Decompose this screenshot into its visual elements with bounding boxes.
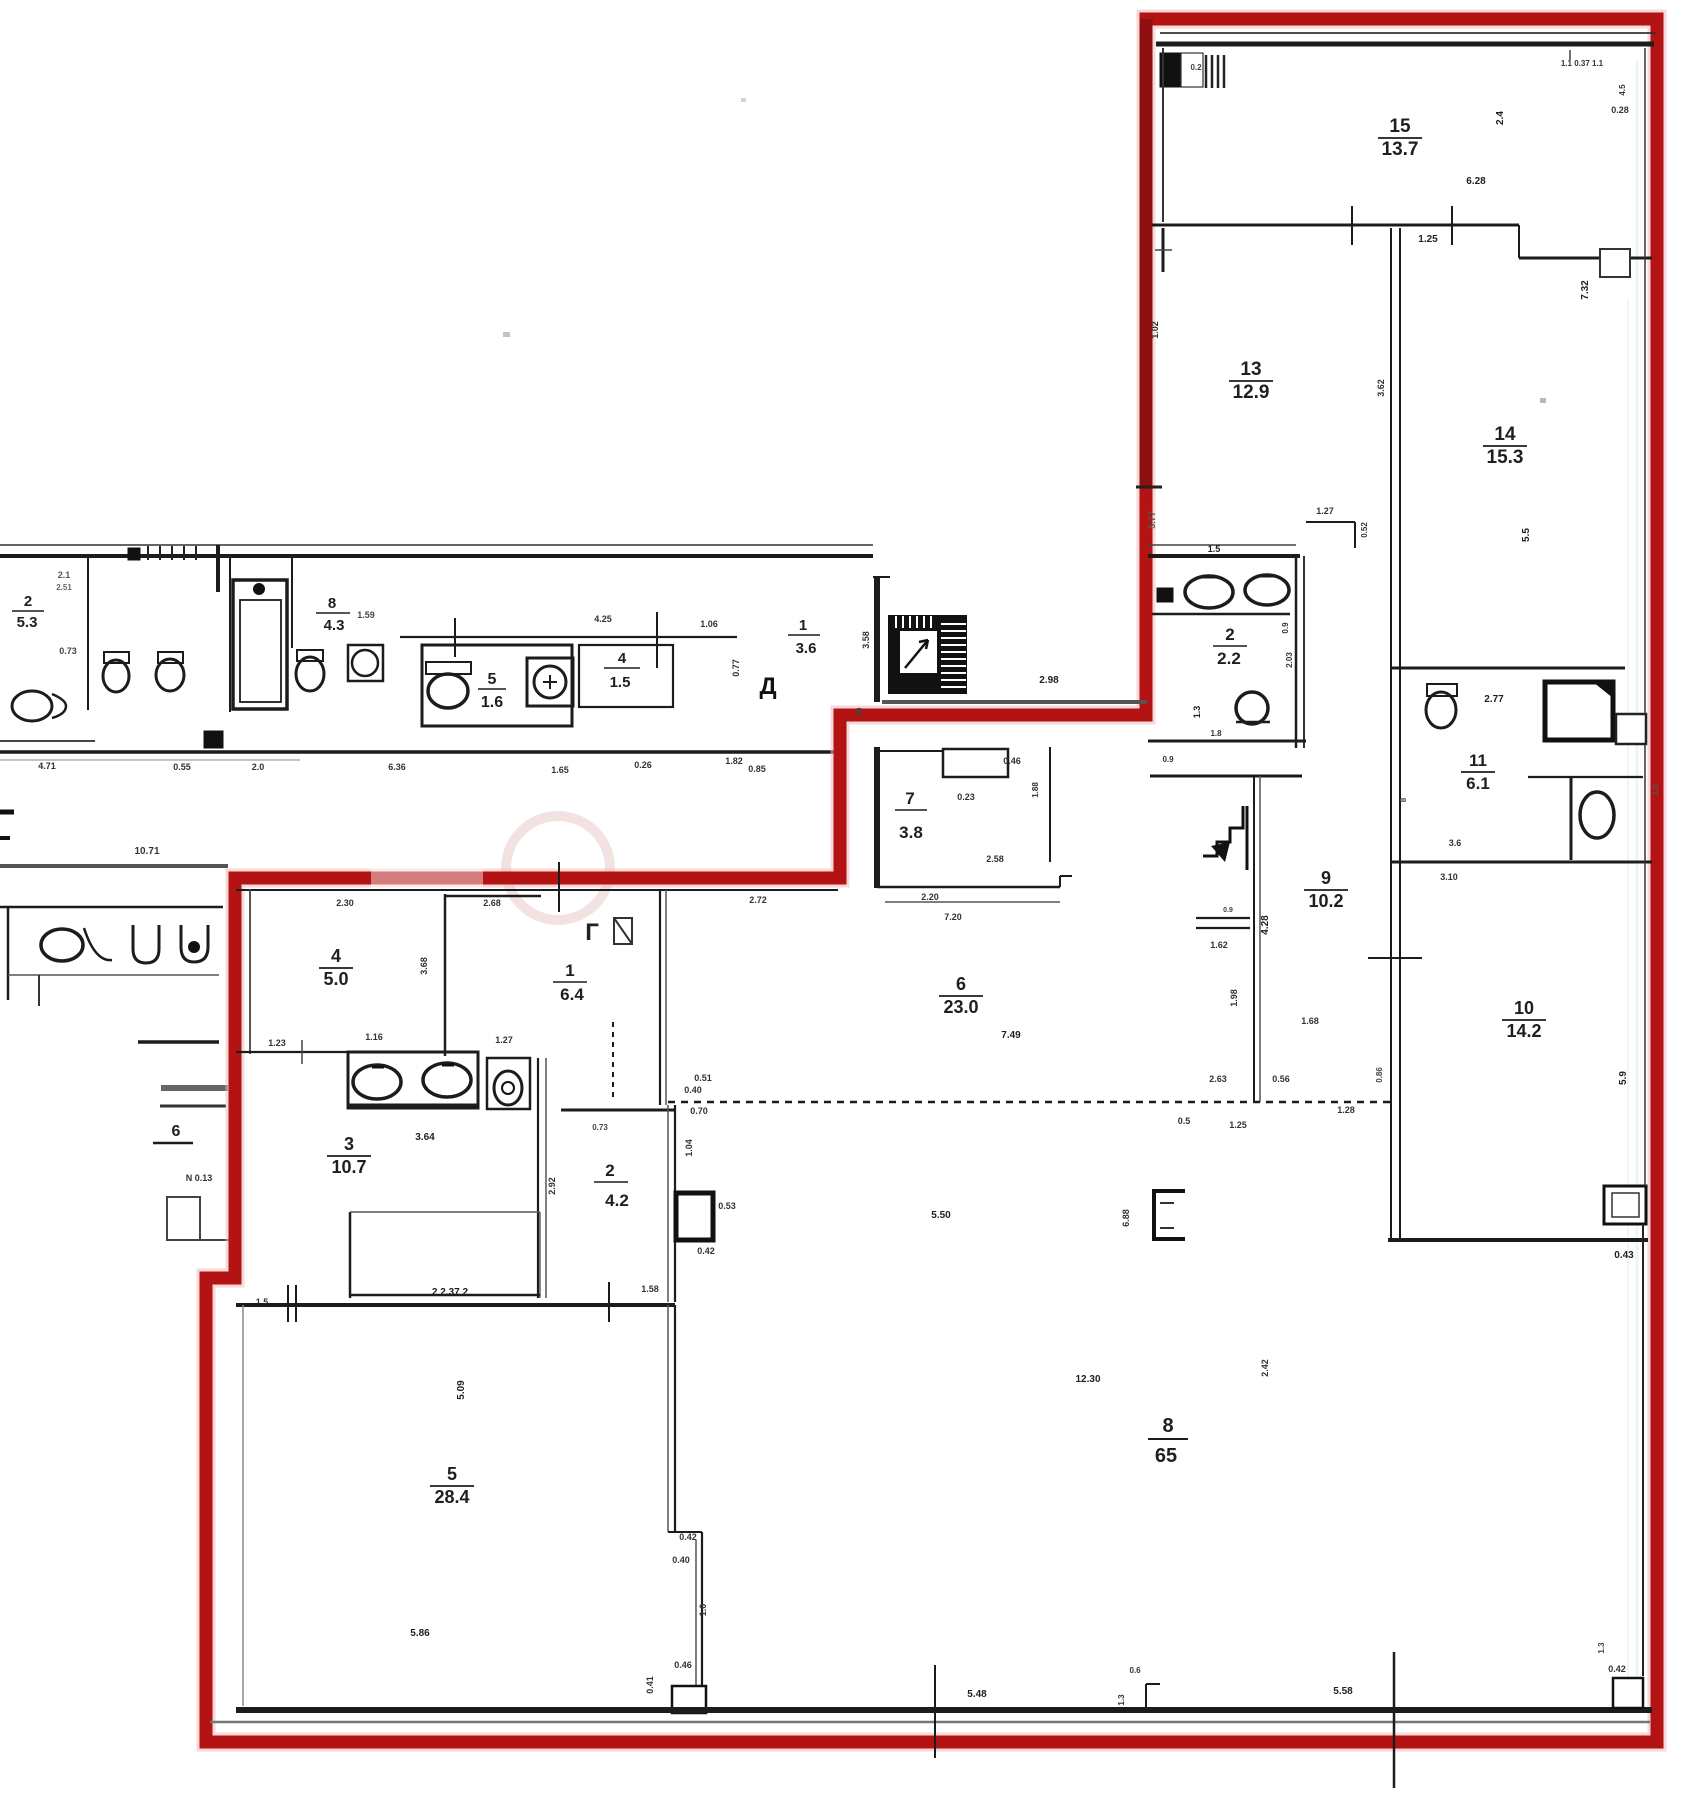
svg-text:0.85: 0.85 [748,764,766,774]
svg-text:5.5: 5.5 [1521,528,1532,542]
svg-text:0.52: 0.52 [1360,522,1369,538]
svg-text:0.42: 0.42 [697,1246,715,1256]
svg-text:Д: Д [759,673,776,700]
svg-text:3.62: 3.62 [1376,379,1386,397]
svg-text:1.58: 1.58 [641,1284,659,1294]
svg-text:0.43: 0.43 [1614,1250,1634,1261]
svg-text:1.8: 1.8 [1210,729,1222,738]
svg-text:6.88: 6.88 [1121,1209,1131,1227]
svg-text:4: 4 [618,650,627,667]
svg-text:2.0: 2.0 [252,762,265,772]
svg-text:0.73: 0.73 [592,1123,608,1132]
svg-text:5.77: 5.77 [1147,511,1157,529]
svg-text:1.1 0.37 1.1: 1.1 0.37 1.1 [1561,59,1604,68]
svg-text:1.27: 1.27 [495,1035,513,1045]
svg-text:1.3: 1.3 [1597,1642,1606,1654]
svg-text:5: 5 [447,1464,457,1484]
svg-text:1.28: 1.28 [1337,1105,1355,1115]
svg-text:4.3: 4.3 [324,617,345,634]
svg-text:2.98: 2.98 [1039,675,1059,686]
svg-text:0.42: 0.42 [1608,1664,1626,1674]
svg-text:7.49: 7.49 [1001,1030,1021,1041]
svg-text:0.46: 0.46 [1003,756,1021,766]
svg-text:5: 5 [488,671,497,688]
svg-text:1.0: 1.0 [698,1604,708,1617]
svg-text:6: 6 [956,974,966,994]
svg-text:6.36: 6.36 [388,762,406,772]
svg-text:15: 15 [1389,116,1411,137]
svg-text:1.3: 1.3 [1192,706,1202,719]
svg-text:1.23: 1.23 [268,1038,286,1048]
svg-text:1.25: 1.25 [1229,1120,1247,1130]
svg-text:1.68: 1.68 [1301,1016,1319,1026]
svg-text:3: 3 [344,1134,354,1154]
svg-text:23.0: 23.0 [943,997,978,1017]
svg-text:8: 8 [1162,1415,1173,1437]
svg-text:2: 2 [1225,625,1234,644]
svg-text:2.20: 2.20 [921,892,939,902]
svg-text:15.3: 15.3 [1487,447,1524,468]
svg-text:2.58: 2.58 [986,854,1004,864]
svg-text:0.2: 0.2 [1190,63,1202,72]
svg-text:10.2: 10.2 [1308,891,1343,911]
svg-text:0.28: 0.28 [1611,105,1629,115]
svg-text:2.77: 2.77 [1484,694,1504,705]
svg-text:14: 14 [1494,424,1516,445]
svg-text:1.06: 1.06 [700,619,718,629]
svg-text:2.42: 2.42 [1260,1359,1270,1377]
svg-text:10: 10 [1514,998,1534,1018]
svg-text:1.16: 1.16 [365,1032,383,1042]
svg-text:2.51: 2.51 [56,583,72,592]
svg-text:3.64: 3.64 [415,1132,435,1143]
svg-text:5.86: 5.86 [410,1628,430,1639]
svg-text:4.2: 4.2 [605,1191,629,1210]
svg-text:2.1: 2.1 [58,570,71,580]
svg-text:1.5: 1.5 [1208,544,1221,554]
svg-text:5.3: 5.3 [17,614,38,631]
svg-text:10.71: 10.71 [134,846,159,857]
svg-text:1.25: 1.25 [1418,234,1438,245]
svg-text:0.5: 0.5 [1178,1116,1191,1126]
svg-text:1.59: 1.59 [357,610,375,620]
svg-text:0.9: 0.9 [1281,622,1290,634]
svg-text:2.03: 2.03 [1285,652,1294,668]
svg-text:4.71: 4.71 [38,761,56,771]
svg-text:3.58: 3.58 [861,631,871,649]
svg-text:28.4: 28.4 [434,1487,469,1507]
svg-text:12.30: 12.30 [1075,1374,1100,1385]
svg-text:5.48: 5.48 [967,1689,987,1700]
svg-text:1: 1 [799,617,807,634]
svg-text:3.68: 3.68 [419,957,429,975]
svg-text:3.8: 3.8 [899,823,923,842]
svg-text:0.41: 0.41 [645,1676,655,1694]
svg-text:11: 11 [1469,751,1487,770]
svg-text:2 2.37 2: 2 2.37 2 [432,1287,469,1298]
svg-text:0.23: 0.23 [957,792,975,802]
svg-text:0.26: 0.26 [634,760,652,770]
svg-text:4.5: 4.5 [1618,84,1627,96]
svg-text:4.25: 4.25 [594,614,612,624]
svg-text:2: 2 [605,1161,614,1180]
svg-text:6.1: 6.1 [1466,774,1490,793]
svg-text:3.6: 3.6 [796,640,817,657]
svg-text:90: 90 [855,707,864,716]
svg-text:6.28: 6.28 [1466,176,1486,187]
svg-text:8: 8 [1399,797,1408,802]
svg-text:2.63: 2.63 [1209,1074,1227,1084]
svg-text:2.92: 2.92 [547,1177,557,1195]
svg-text:5.58: 5.58 [1333,1686,1353,1697]
svg-text:2.68: 2.68 [483,898,501,908]
svg-text:13.7: 13.7 [1382,139,1419,160]
svg-text:1.02: 1.02 [1150,321,1160,339]
svg-text:1: 1 [565,961,574,980]
svg-text:7.32: 7.32 [1580,280,1591,300]
svg-text:10.7: 10.7 [331,1157,366,1177]
svg-text:65: 65 [1155,1445,1177,1467]
svg-text:9: 9 [1321,868,1331,888]
svg-text:4: 4 [331,946,341,966]
svg-text:7.20: 7.20 [944,912,962,922]
svg-text:1.6: 1.6 [481,694,503,711]
svg-text:3.6: 3.6 [1449,838,1462,848]
svg-text:5.09: 5.09 [456,1380,467,1400]
svg-text:1.3: 1.3 [1117,1694,1126,1706]
svg-text:8: 8 [328,595,336,612]
svg-text:12.9: 12.9 [1233,382,1270,403]
svg-text:1.62: 1.62 [1210,940,1228,950]
svg-text:2.30: 2.30 [336,898,354,908]
svg-text:0.55: 0.55 [173,762,191,772]
svg-text:0.56: 0.56 [1272,1074,1290,1084]
svg-text:0.6: 0.6 [1129,1666,1141,1675]
svg-text:0.73: 0.73 [59,646,77,656]
svg-text:7: 7 [905,789,914,808]
svg-text:Г: Г [585,919,599,946]
svg-text:1.0: 1.0 [1651,784,1660,796]
svg-text:5.50: 5.50 [931,1210,951,1221]
svg-text:1.98: 1.98 [1229,989,1239,1007]
svg-text:6: 6 [172,1123,181,1140]
svg-text:0.40: 0.40 [672,1555,690,1565]
svg-text:1.65: 1.65 [551,765,569,775]
svg-text:0.53: 0.53 [718,1201,736,1211]
svg-text:5.9: 5.9 [1618,1071,1629,1085]
svg-text:4.28: 4.28 [1260,915,1271,935]
svg-text:0.42: 0.42 [679,1532,697,1542]
svg-text:0.9: 0.9 [1162,755,1174,764]
svg-text:13: 13 [1240,359,1261,380]
svg-text:14.2: 14.2 [1506,1021,1541,1041]
svg-text:0.40: 0.40 [684,1085,702,1095]
svg-text:0.86: 0.86 [1375,1067,1384,1083]
svg-text:5.0: 5.0 [323,969,348,989]
svg-text:2.72: 2.72 [749,895,767,905]
svg-text:3.10: 3.10 [1440,872,1458,882]
svg-text:1.5: 1.5 [610,674,631,691]
svg-text:2.2: 2.2 [1217,649,1241,668]
svg-text:N 0.13: N 0.13 [186,1173,213,1183]
svg-text:6.4: 6.4 [560,985,584,1004]
svg-text:1.04: 1.04 [684,1139,694,1157]
svg-text:1.88: 1.88 [1031,782,1040,798]
svg-text:0.46: 0.46 [674,1660,692,1670]
svg-text:2.4: 2.4 [1495,111,1506,125]
svg-text:1.82: 1.82 [725,756,743,766]
svg-text:1.27: 1.27 [1316,506,1334,516]
svg-text:0.51: 0.51 [694,1073,712,1083]
svg-text:0.77: 0.77 [731,659,741,677]
svg-text:0.9: 0.9 [1223,907,1233,914]
svg-text:0.70: 0.70 [690,1106,708,1116]
svg-text:2: 2 [24,593,32,610]
